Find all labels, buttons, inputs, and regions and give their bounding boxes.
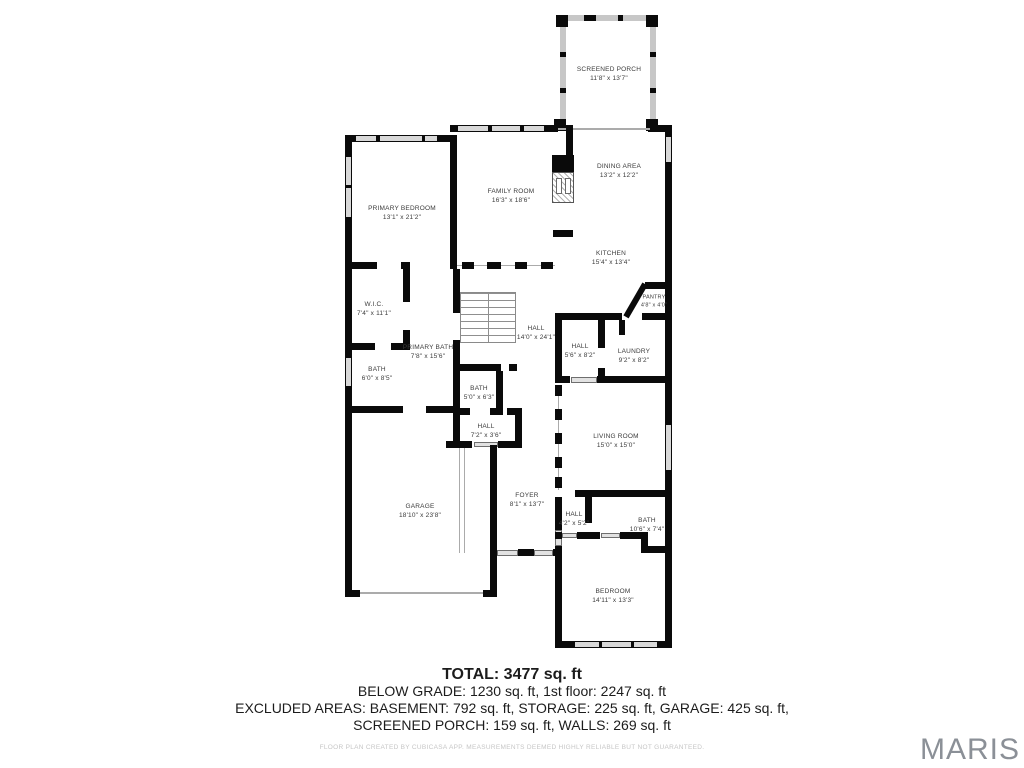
room-label-bath-center: BATH5'0" x 6'3" [464, 384, 495, 402]
fireplace-inset [565, 178, 571, 194]
wall [575, 490, 672, 497]
wall [450, 135, 457, 269]
room-name: W.I.C. [357, 300, 391, 309]
wall [555, 376, 570, 383]
wall [518, 549, 534, 556]
wall [490, 408, 503, 415]
wall [345, 262, 377, 269]
door-threshold [497, 550, 518, 556]
wall [345, 406, 403, 413]
room-label-hall-lower: HALL7'2" x 3'6" [471, 422, 502, 440]
door-threshold [571, 377, 597, 383]
wall [498, 441, 517, 448]
room-name: HALL [517, 324, 555, 333]
door-threshold [601, 533, 620, 538]
room-name: BATH [464, 384, 495, 393]
wall [401, 262, 410, 269]
room-label-hall-main: HALL14'0" x 24'1" [517, 324, 555, 342]
maris-logo: MARIS [920, 733, 1020, 767]
wall [509, 364, 517, 371]
room-label-kitchen: KITCHEN15'4" x 13'4" [592, 249, 630, 267]
room-dims: 16'3" x 18'6" [488, 196, 535, 205]
wall [446, 441, 472, 448]
wall [462, 262, 474, 269]
window [575, 642, 599, 647]
room-dims: 5'0" x 6'3" [464, 393, 495, 402]
room-name: BEDROOM [592, 587, 634, 596]
room-label-primary-bath: PRIMARY BATH7'8" x 15'6" [403, 343, 453, 361]
room-dims: 4'8" x 4'0" [641, 302, 667, 310]
window [492, 126, 520, 131]
room-dims: 13'1" x 21'2" [368, 213, 436, 222]
excluded-areas-text: EXCLUDED AREAS: BASEMENT: 792 sq. ft, ST… [0, 700, 1024, 717]
room-label-hall-bedroom: HALL4'2" x 5'2" [559, 510, 590, 528]
wall [403, 269, 410, 302]
room-name: HALL [471, 422, 502, 431]
room-dims: 7'4" x 11'1" [357, 309, 391, 318]
wall [665, 125, 672, 648]
room-dims: 14'0" x 24'1" [517, 333, 555, 342]
wall [555, 313, 622, 320]
wall [619, 320, 625, 335]
door-threshold [534, 550, 553, 556]
room-dims: 15'4" x 13'4" [592, 258, 630, 267]
room-name: DINING AREA [597, 162, 641, 171]
room-label-dining-area: DINING AREA13'2" x 12'2" [597, 162, 641, 180]
opening-line [464, 448, 465, 553]
opening-line [459, 448, 460, 553]
wall [560, 52, 566, 57]
wall [645, 282, 672, 289]
wall [555, 546, 562, 648]
wall [345, 590, 360, 597]
wall [566, 125, 573, 157]
room-name: PRIMARY BEDROOM [368, 204, 436, 213]
room-name: HALL [559, 510, 590, 519]
wall [553, 230, 573, 237]
porch-screen-wall [560, 17, 566, 125]
wall [460, 408, 470, 415]
window [666, 425, 671, 470]
area-summary: TOTAL: 3477 sq. ft BELOW GRADE: 1230 sq.… [0, 666, 1024, 734]
room-dims: 5'6" x 8'2" [565, 351, 596, 360]
room-name: BATH [630, 516, 664, 525]
floor-plan-page: SCREENED PORCH11'8" x 13'7" PRIMARY BEDR… [0, 0, 1024, 768]
window [634, 642, 657, 647]
room-dims: 7'8" x 15'6" [403, 352, 453, 361]
door-threshold [562, 533, 577, 538]
wall [641, 546, 672, 553]
wall [560, 88, 566, 93]
excluded-areas-text-2: SCREENED PORCH: 159 sq. ft, WALLS: 269 s… [0, 717, 1024, 734]
window [524, 126, 544, 131]
room-name: BATH [362, 365, 393, 374]
wall [650, 52, 656, 57]
room-label-primary-bedroom: PRIMARY BEDROOM13'1" x 21'2" [368, 204, 436, 222]
wall [646, 15, 658, 27]
window [666, 137, 671, 162]
window [425, 136, 437, 141]
below-grade-text: BELOW GRADE: 1230 sq. ft, 1st floor: 224… [0, 683, 1024, 700]
room-label-wic: W.I.C.7'4" x 11'1" [357, 300, 391, 318]
room-dims: 8'1" x 13'7" [510, 500, 544, 509]
wall [555, 409, 562, 420]
room-label-hall-small: HALL5'6" x 8'2" [565, 342, 596, 360]
room-dims: 15'0" x 15'0" [593, 441, 639, 450]
porch-screen-wall [560, 15, 656, 21]
wall [541, 262, 553, 269]
fireplace [552, 155, 574, 172]
wall [345, 343, 375, 350]
wall [555, 385, 562, 396]
wall [555, 313, 562, 376]
wall [487, 262, 501, 269]
porch-screen-wall [650, 17, 656, 125]
wall [490, 445, 497, 597]
wall [597, 376, 672, 383]
wall [555, 477, 562, 488]
room-dims: 4'2" x 5'2" [559, 519, 590, 528]
room-label-laundry: LAUNDRY9'2" x 8'2" [618, 347, 650, 365]
room-label-garage: GARAGE18'10" x 23'8" [399, 502, 441, 520]
room-name: SCREENED PORCH [577, 65, 641, 74]
wall [585, 532, 600, 539]
total-area-text: TOTAL: 3477 sq. ft [0, 666, 1024, 683]
window [602, 642, 631, 647]
wall [453, 340, 460, 415]
window [458, 126, 488, 131]
wall [555, 532, 562, 539]
wall [455, 364, 501, 371]
room-label-foyer: FOYER8'1" x 13'7" [510, 491, 544, 509]
room-name: PRIMARY BATH [403, 343, 453, 352]
room-label-pantry: PANTRY4'8" x 4'0" [641, 294, 667, 309]
room-dims: 14'11" x 13'3" [592, 596, 634, 605]
room-name: FOYER [510, 491, 544, 500]
wall [453, 269, 460, 313]
wall [515, 262, 527, 269]
wall [642, 313, 672, 320]
room-dims: 13'2" x 12'2" [597, 171, 641, 180]
room-name: LIVING ROOM [593, 432, 639, 441]
room-name: HALL [565, 342, 596, 351]
wall [556, 15, 568, 27]
window [380, 136, 422, 141]
wall [496, 371, 503, 413]
room-dims: 6'0" x 8'5" [362, 374, 393, 383]
room-label-family-room: FAMILY ROOM16'3" x 18'6" [488, 187, 535, 205]
room-name: PANTRY [641, 294, 667, 302]
window [356, 136, 376, 141]
wall [345, 185, 352, 188]
wall [650, 88, 656, 93]
room-label-bath-left: BATH6'0" x 8'5" [362, 365, 393, 383]
wall [490, 549, 497, 556]
room-name: LAUNDRY [618, 347, 650, 356]
fireplace-inset [556, 178, 562, 194]
room-dims: 18'10" x 23'8" [399, 511, 441, 520]
room-label-screened-porch: SCREENED PORCH11'8" x 13'7" [577, 65, 641, 83]
wall [555, 457, 562, 468]
room-name: GARAGE [399, 502, 441, 511]
opening-line [360, 592, 483, 594]
room-label-bedroom: BEDROOM14'11" x 13'3" [592, 587, 634, 605]
disclaimer-text: FLOOR PLAN CREATED BY CUBICASA APP. MEAS… [0, 744, 1024, 751]
room-label-living-room: LIVING ROOM15'0" x 15'0" [593, 432, 639, 450]
room-name: KITCHEN [592, 249, 630, 258]
room-dims: 7'2" x 3'6" [471, 431, 502, 440]
room-dims: 9'2" x 8'2" [618, 356, 650, 365]
staircase [460, 292, 516, 343]
room-dims: 11'8" x 13'7" [577, 74, 641, 83]
window [346, 358, 351, 386]
wall [598, 320, 605, 348]
wall [618, 15, 623, 21]
wall [584, 15, 596, 21]
wall [555, 433, 562, 444]
room-label-bath-hall: BATH10'6" x 7'4" [630, 516, 664, 534]
room-dims: 10'6" x 7'4" [630, 525, 664, 534]
room-name: FAMILY ROOM [488, 187, 535, 196]
